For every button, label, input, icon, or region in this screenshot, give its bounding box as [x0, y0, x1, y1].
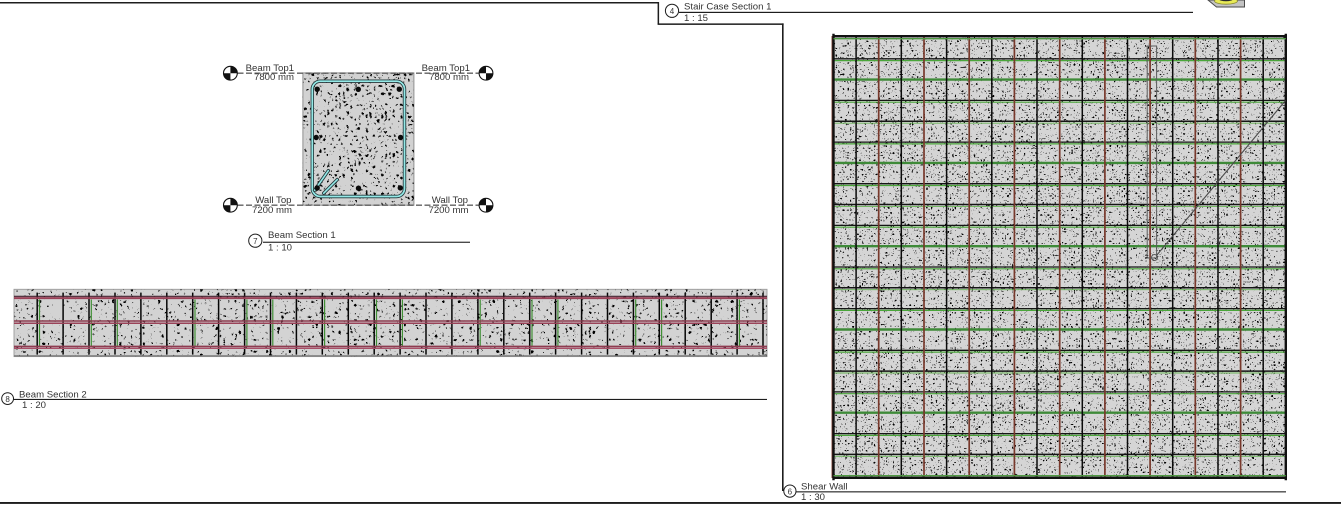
svg-text:7200 mm: 7200 mm [429, 205, 469, 216]
svg-text:8: 8 [5, 395, 10, 404]
svg-text:Stair Case Section 1: Stair Case Section 1 [684, 1, 771, 12]
svg-text:7800 mm: 7800 mm [429, 72, 469, 83]
svg-text:7: 7 [253, 237, 258, 246]
svg-text:Beam Section 2: Beam Section 2 [19, 389, 87, 400]
svg-text:7200 mm: 7200 mm [252, 205, 292, 216]
svg-text:Shear Wall: Shear Wall [801, 481, 848, 492]
svg-text:7800 mm: 7800 mm [254, 72, 294, 83]
svg-text:1 : 20: 1 : 20 [22, 400, 46, 411]
svg-text:Beam Section 1: Beam Section 1 [268, 230, 336, 241]
svg-text:4: 4 [670, 7, 675, 16]
svg-text:1 : 10: 1 : 10 [268, 243, 292, 254]
svg-text:6: 6 [788, 487, 793, 496]
svg-text:1 : 30: 1 : 30 [801, 492, 825, 503]
svg-text:1 : 15: 1 : 15 [684, 13, 708, 24]
